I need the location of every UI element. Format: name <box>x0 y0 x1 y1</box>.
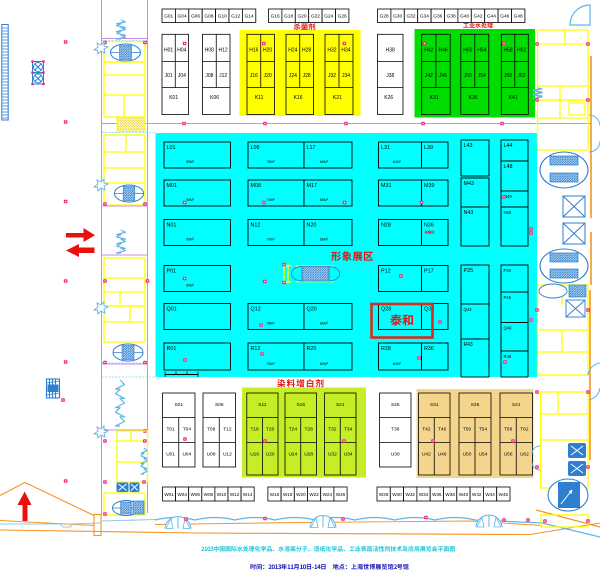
svg-text:H42: H42 <box>424 47 433 53</box>
svg-text:U42: U42 <box>422 452 431 458</box>
svg-text:60M²: 60M² <box>393 362 402 366</box>
svg-text:N20: N20 <box>307 223 317 229</box>
svg-text:J20: J20 <box>264 73 272 79</box>
svg-text:W26: W26 <box>336 492 346 497</box>
svg-text:K01: K01 <box>169 95 178 101</box>
svg-text:K31: K31 <box>430 95 439 101</box>
svg-text:G14: G14 <box>245 14 254 20</box>
svg-text:78M²: 78M² <box>266 198 275 202</box>
svg-text:M43: M43 <box>464 181 475 187</box>
svg-text:L01: L01 <box>167 145 176 151</box>
svg-text:N12: N12 <box>251 223 261 229</box>
svg-text:J28: J28 <box>303 73 311 79</box>
svg-text:W18: W18 <box>283 492 293 497</box>
svg-text:W10: W10 <box>217 492 227 497</box>
svg-text:Q28: Q28 <box>381 307 391 313</box>
svg-text:T34: T34 <box>344 427 353 433</box>
svg-text:M08: M08 <box>251 183 262 189</box>
svg-text:78M²: 78M² <box>266 238 275 242</box>
svg-text:W34: W34 <box>419 492 429 497</box>
svg-text:T32: T32 <box>328 427 337 433</box>
svg-text:W36: W36 <box>432 492 442 497</box>
svg-text:G22: G22 <box>311 14 320 20</box>
svg-text:S01: S01 <box>174 402 183 408</box>
svg-text:L43: L43 <box>464 143 473 149</box>
svg-text:T08: T08 <box>207 427 216 433</box>
svg-text:J58: J58 <box>504 73 512 79</box>
svg-text:W12: W12 <box>230 492 240 497</box>
svg-text:U28: U28 <box>304 452 313 458</box>
svg-text:W01: W01 <box>164 492 174 497</box>
svg-text:J38: J38 <box>386 73 394 79</box>
svg-text:W44: W44 <box>485 492 495 497</box>
svg-text:U46: U46 <box>438 452 447 458</box>
svg-text:L08: L08 <box>251 145 260 151</box>
svg-text:J04: J04 <box>178 73 186 79</box>
svg-text:G18: G18 <box>284 14 293 20</box>
svg-text:T42: T42 <box>422 427 431 433</box>
svg-text:W04: W04 <box>177 492 187 497</box>
svg-text:T01: T01 <box>166 427 175 433</box>
svg-text:H04: H04 <box>177 47 186 53</box>
svg-text:Q12: Q12 <box>251 307 261 313</box>
svg-text:G04: G04 <box>178 14 187 20</box>
svg-text:L31: L31 <box>381 145 390 151</box>
svg-text:G46: G46 <box>500 14 509 20</box>
svg-text:90M²: 90M² <box>186 198 195 202</box>
svg-text:S21: S21 <box>336 402 345 408</box>
svg-text:H24: H24 <box>288 47 297 53</box>
svg-text:J24: J24 <box>289 73 297 79</box>
svg-text:K16: K16 <box>294 95 303 101</box>
svg-text:J12: J12 <box>219 73 227 79</box>
svg-text:T58: T58 <box>504 427 513 433</box>
svg-text:W08: W08 <box>204 492 214 497</box>
svg-text:90M²: 90M² <box>186 160 195 164</box>
svg-text:W16: W16 <box>270 492 280 497</box>
svg-text:J46: J46 <box>439 73 447 79</box>
svg-text:T16: T16 <box>250 427 259 433</box>
svg-text:U01: U01 <box>166 452 175 458</box>
svg-text:L44: L44 <box>504 143 513 149</box>
svg-text:J50: J50 <box>464 73 472 79</box>
svg-text:K41: K41 <box>509 95 518 101</box>
svg-text:S26: S26 <box>391 402 400 408</box>
svg-text:W38: W38 <box>445 492 455 497</box>
svg-text:H50: H50 <box>463 47 472 53</box>
svg-text:H01: H01 <box>164 47 173 53</box>
svg-text:K26: K26 <box>384 95 393 101</box>
svg-text:G40: G40 <box>460 14 469 20</box>
svg-text:W40: W40 <box>459 492 469 497</box>
svg-text:H16: H16 <box>249 47 258 53</box>
svg-text:N28: N28 <box>381 223 391 229</box>
svg-text:T46: T46 <box>438 427 447 433</box>
svg-text:G30: G30 <box>393 14 402 20</box>
svg-text:P25: P25 <box>464 268 474 274</box>
svg-text:T04: T04 <box>183 427 192 433</box>
svg-text:M17: M17 <box>307 183 318 189</box>
svg-text:W46: W46 <box>499 492 509 497</box>
svg-text:J32: J32 <box>328 73 336 79</box>
svg-text:60M²: 60M² <box>320 362 329 366</box>
svg-text:U04: U04 <box>182 452 191 458</box>
svg-text:U16: U16 <box>250 452 259 458</box>
svg-text:W06: W06 <box>191 492 201 497</box>
svg-text:W14: W14 <box>243 492 253 497</box>
svg-text:T12: T12 <box>223 427 232 433</box>
svg-text:H34: H34 <box>341 47 350 53</box>
svg-text:H32: H32 <box>327 47 336 53</box>
svg-text:L48: L48 <box>504 164 513 170</box>
svg-text:K36: K36 <box>469 95 478 101</box>
svg-text:N36: N36 <box>424 223 434 229</box>
svg-text:M01: M01 <box>167 183 178 189</box>
svg-text:66M²: 66M² <box>320 160 329 164</box>
svg-text:90M²: 90M² <box>186 284 195 288</box>
svg-text:T54: T54 <box>479 427 488 433</box>
svg-text:78M²: 78M² <box>266 322 275 326</box>
svg-text:J01: J01 <box>165 73 173 79</box>
svg-text:L39: L39 <box>424 145 433 151</box>
svg-text:P30: P30 <box>504 268 512 273</box>
svg-text:W24: W24 <box>323 492 333 497</box>
svg-text:N43: N43 <box>464 210 474 216</box>
svg-text:N50: N50 <box>504 210 512 215</box>
svg-text:N01: N01 <box>167 223 177 229</box>
svg-text:T38: T38 <box>391 427 400 433</box>
svg-text:T50: T50 <box>463 427 472 433</box>
svg-text:66M²: 66M² <box>320 322 329 326</box>
svg-text:U20: U20 <box>266 452 275 458</box>
svg-text:H08: H08 <box>205 47 214 53</box>
svg-text:W22: W22 <box>309 492 319 497</box>
svg-text:T28: T28 <box>304 427 313 433</box>
svg-text:H46: H46 <box>438 47 447 53</box>
svg-text:U08: U08 <box>207 452 216 458</box>
svg-text:P45: P45 <box>504 295 512 300</box>
svg-text:J16: J16 <box>250 73 258 79</box>
svg-text:R48: R48 <box>504 354 512 359</box>
svg-text:R36: R36 <box>424 346 434 352</box>
svg-text:S41: S41 <box>512 402 521 408</box>
svg-text:U32: U32 <box>328 452 337 458</box>
svg-text:H54: H54 <box>477 47 486 53</box>
svg-text:U56: U56 <box>504 452 513 458</box>
svg-text:G06: G06 <box>191 14 200 20</box>
svg-text:G36: G36 <box>433 14 442 20</box>
svg-text:66M²: 66M² <box>320 238 329 242</box>
svg-text:G08: G08 <box>204 14 213 20</box>
svg-text:H20: H20 <box>263 47 272 53</box>
svg-text:S11: S11 <box>258 402 267 408</box>
svg-text:W42: W42 <box>472 492 482 497</box>
svg-text:G32: G32 <box>406 14 415 20</box>
svg-text:S16: S16 <box>296 402 305 408</box>
svg-text:R28: R28 <box>381 346 391 352</box>
svg-text:G10: G10 <box>218 14 227 20</box>
svg-text:U34: U34 <box>344 452 353 458</box>
svg-text:W28: W28 <box>379 492 389 497</box>
svg-text:Q01: Q01 <box>167 307 177 313</box>
svg-text:P12: P12 <box>381 269 391 275</box>
svg-text:G26: G26 <box>338 14 347 20</box>
svg-text:M39: M39 <box>424 183 435 189</box>
svg-text:60M²: 60M² <box>393 160 402 164</box>
svg-text:G24: G24 <box>324 14 333 20</box>
svg-text:U62: U62 <box>520 452 529 458</box>
svg-text:R01: R01 <box>167 346 177 352</box>
svg-text:K11: K11 <box>255 95 264 101</box>
svg-text:H58: H58 <box>503 47 512 53</box>
svg-text:T62: T62 <box>520 427 529 433</box>
svg-text:R43: R43 <box>464 342 473 348</box>
svg-text:R20: R20 <box>307 346 317 352</box>
svg-text:66M²: 66M² <box>320 198 329 202</box>
svg-text:78M²: 78M² <box>266 160 275 164</box>
svg-text:J08: J08 <box>205 73 213 79</box>
svg-text:G38: G38 <box>447 14 456 20</box>
svg-text:H62: H62 <box>517 47 526 53</box>
svg-text:W30: W30 <box>392 492 402 497</box>
svg-text:R12: R12 <box>251 346 261 352</box>
svg-text:G42: G42 <box>473 14 482 20</box>
svg-text:S31: S31 <box>430 402 439 408</box>
svg-text:Q43: Q43 <box>464 307 473 312</box>
svg-text:H12: H12 <box>219 47 228 53</box>
svg-text:G48: G48 <box>514 14 523 20</box>
svg-text:G44: G44 <box>487 14 496 20</box>
svg-text:G28: G28 <box>380 14 389 20</box>
svg-text:H28: H28 <box>302 47 311 53</box>
svg-text:S06: S06 <box>215 402 224 408</box>
svg-text:G16: G16 <box>271 14 280 20</box>
svg-text:W20: W20 <box>296 492 306 497</box>
svg-text:G34: G34 <box>420 14 429 20</box>
svg-text:K06: K06 <box>210 95 219 101</box>
svg-text:T24: T24 <box>289 427 298 433</box>
svg-text:K21: K21 <box>333 95 342 101</box>
svg-text:J34: J34 <box>342 73 350 79</box>
svg-text:J42: J42 <box>425 73 433 79</box>
svg-text:T20: T20 <box>266 427 275 433</box>
svg-text:J62: J62 <box>518 73 526 79</box>
svg-text:G01: G01 <box>164 14 173 20</box>
svg-text:P17: P17 <box>424 269 434 275</box>
svg-text:W32: W32 <box>406 492 416 497</box>
svg-text:H38: H38 <box>386 47 395 53</box>
svg-text:G12: G12 <box>231 14 240 20</box>
svg-text:U54: U54 <box>479 452 488 458</box>
svg-text:90M²: 90M² <box>186 238 195 242</box>
svg-text:M31: M31 <box>381 183 392 189</box>
svg-text:P01: P01 <box>167 269 177 275</box>
svg-text:U12: U12 <box>223 452 232 458</box>
svg-text:S36: S36 <box>471 402 480 408</box>
svg-text:U50: U50 <box>463 452 472 458</box>
svg-text:G20: G20 <box>297 14 306 20</box>
svg-text:Q20: Q20 <box>307 307 317 313</box>
svg-text:L17: L17 <box>307 145 316 151</box>
svg-text:U38: U38 <box>391 452 400 458</box>
svg-text:J54: J54 <box>478 73 486 79</box>
svg-text:U24: U24 <box>288 452 297 458</box>
svg-text:78M²: 78M² <box>266 362 275 366</box>
svg-text:Q49: Q49 <box>504 326 513 331</box>
